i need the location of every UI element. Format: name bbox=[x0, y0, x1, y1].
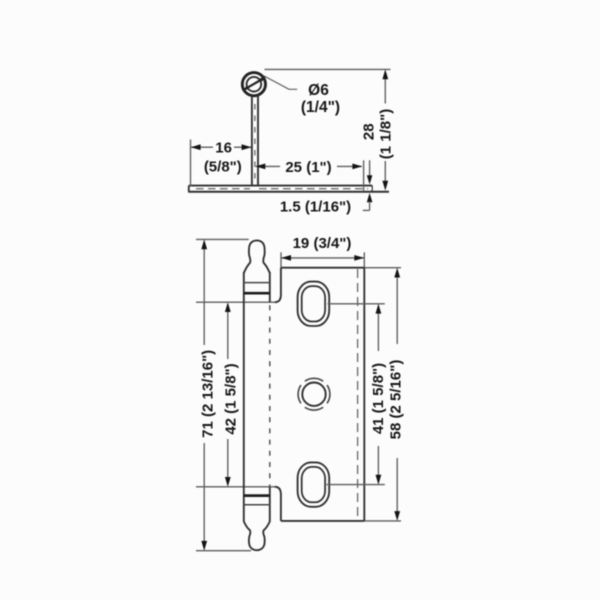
svg-text:16: 16 bbox=[215, 140, 232, 157]
svg-text:Ø6: Ø6 bbox=[308, 82, 329, 99]
svg-text:(5/8"): (5/8") bbox=[204, 158, 242, 175]
svg-text:58 (2 5/16"): 58 (2 5/16") bbox=[388, 360, 405, 440]
svg-text:71 (2 13/16"): 71 (2 13/16") bbox=[200, 350, 217, 438]
svg-text:(1/4"): (1/4") bbox=[301, 99, 340, 116]
svg-text:19 (3/4"): 19 (3/4") bbox=[293, 235, 352, 252]
svg-text:42 (1 5/8"): 42 (1 5/8") bbox=[223, 363, 240, 434]
svg-text:41 (1 5/8"): 41 (1 5/8") bbox=[370, 363, 387, 434]
svg-text:(1 1/8"): (1 1/8") bbox=[378, 109, 395, 159]
svg-text:25 (1"): 25 (1") bbox=[285, 159, 331, 176]
svg-text:28: 28 bbox=[361, 123, 378, 140]
svg-text:1.5 (1/16"): 1.5 (1/16") bbox=[280, 198, 351, 215]
